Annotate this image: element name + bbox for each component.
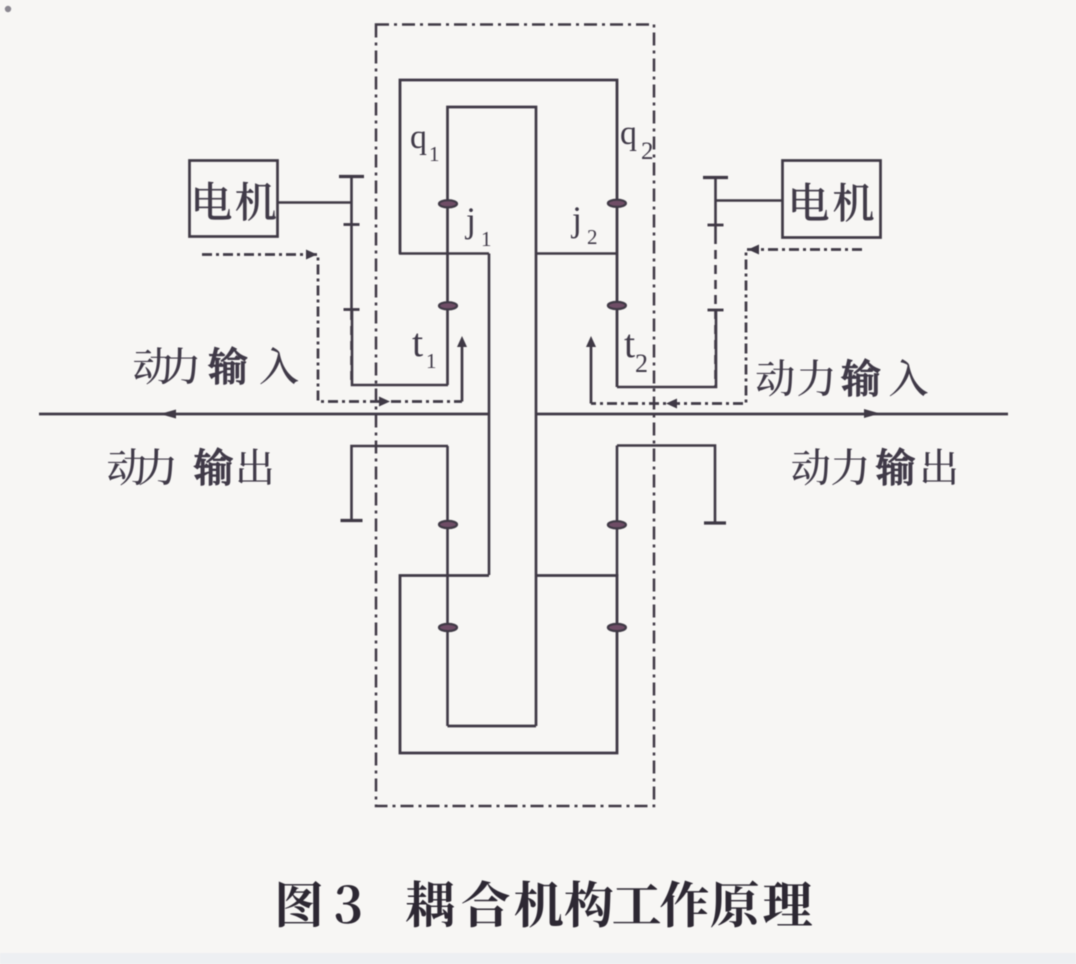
svg-text:1: 1 [481, 227, 492, 251]
svg-text:1: 1 [429, 142, 440, 166]
svg-text:t: t [624, 321, 635, 366]
svg-text:2: 2 [641, 138, 654, 165]
svg-text:2: 2 [587, 225, 598, 249]
svg-text:t: t [412, 320, 423, 365]
svg-text:1: 1 [426, 349, 437, 373]
svg-text:j: j [570, 199, 582, 239]
svg-text:q: q [620, 115, 637, 152]
svg-text:2: 2 [635, 349, 648, 378]
svg-text:j: j [464, 200, 476, 240]
svg-text:q: q [410, 119, 427, 156]
